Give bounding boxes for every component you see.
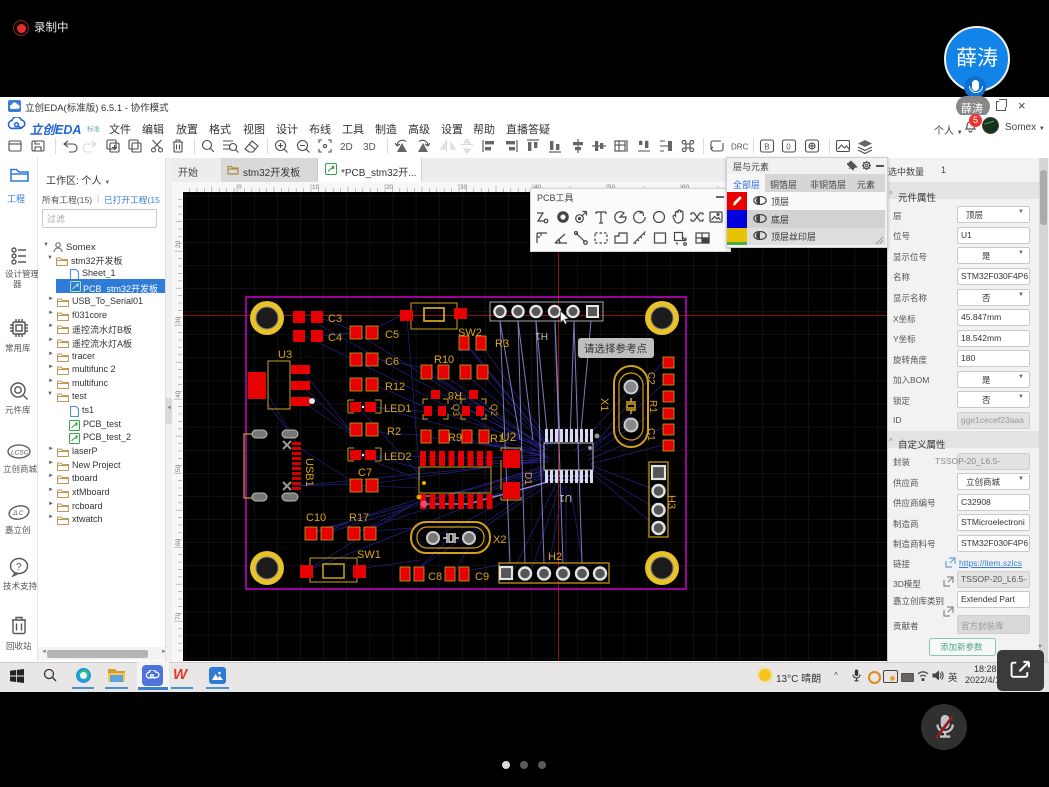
svg-text:50: 50	[175, 464, 182, 472]
svg-text:60: 60	[175, 538, 182, 546]
svg-text:H3: H3	[665, 495, 677, 509]
svg-text:R8: R8	[448, 389, 462, 401]
svg-text:30: 30	[460, 184, 468, 191]
svg-text:R2: R2	[387, 426, 401, 438]
svg-text:40: 40	[175, 390, 182, 398]
svg-text:C5: C5	[385, 329, 399, 341]
svg-text:R17: R17	[349, 512, 369, 524]
svg-text:3D: 3D	[363, 142, 376, 153]
svg-text:USB1: USB1	[303, 458, 315, 487]
svg-text:R12: R12	[385, 381, 405, 393]
svg-text:0: 0	[786, 143, 791, 152]
svg-text:X2: X2	[493, 534, 506, 546]
svg-text:C2: C2	[645, 372, 656, 385]
svg-text:D1: D1	[522, 472, 533, 485]
svg-text:R3: R3	[495, 338, 509, 350]
svg-text:U3: U3	[278, 349, 292, 361]
svg-text:C7: C7	[358, 467, 372, 479]
svg-text:2D: 2D	[340, 142, 353, 153]
svg-text:0: 0	[238, 184, 242, 191]
svg-text:R9: R9	[448, 432, 462, 444]
svg-text:H1: H1	[535, 330, 548, 341]
svg-text:LED1: LED1	[384, 403, 412, 415]
svg-text:30: 30	[175, 316, 182, 324]
svg-text:R1: R1	[647, 400, 658, 413]
svg-text:U1: U1	[559, 492, 572, 503]
svg-text:LCSC: LCSC	[11, 450, 29, 457]
svg-text:20: 20	[175, 240, 182, 248]
svg-text:JLC: JLC	[12, 511, 24, 517]
svg-text:SW1: SW1	[357, 549, 381, 561]
svg-text:C4: C4	[328, 332, 342, 344]
svg-text:请选择参考点: 请选择参考点	[584, 342, 647, 355]
svg-text:DRC: DRC	[731, 143, 749, 152]
svg-text:Q3: Q3	[451, 404, 461, 416]
svg-text:10: 10	[312, 184, 320, 191]
svg-text:U2: U2	[501, 430, 517, 444]
svg-text:C8: C8	[428, 571, 442, 583]
svg-text:C3: C3	[328, 313, 342, 325]
svg-text:C6: C6	[385, 356, 399, 368]
svg-text:LED2: LED2	[384, 451, 412, 463]
svg-text:20: 20	[386, 184, 394, 191]
svg-text:C10: C10	[306, 512, 326, 524]
svg-text:Q2: Q2	[489, 404, 499, 416]
svg-text:C9: C9	[475, 571, 489, 583]
svg-text:70: 70	[175, 612, 182, 620]
svg-text:X1: X1	[598, 398, 610, 411]
svg-text:R10: R10	[434, 354, 454, 366]
svg-text:C1: C1	[645, 428, 656, 441]
svg-text:B: B	[764, 143, 769, 152]
svg-text:?: ?	[16, 562, 22, 573]
svg-text:H2: H2	[548, 551, 562, 563]
